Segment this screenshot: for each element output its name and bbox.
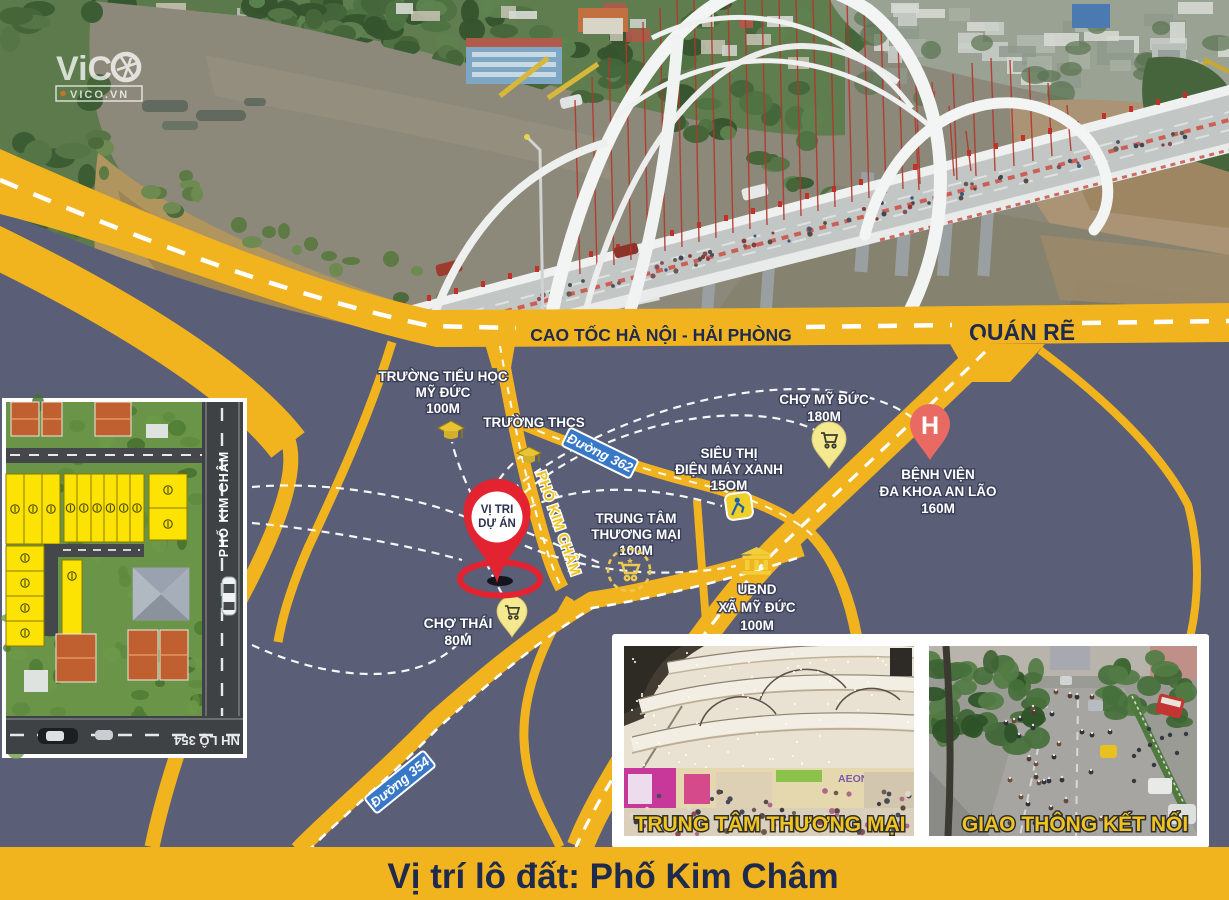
svg-text:SIÊU THỊ: SIÊU THỊ: [700, 446, 757, 461]
svg-text:TRƯỜNG TIỂU HỌC: TRƯỜNG TIỂU HỌC: [378, 369, 507, 384]
svg-text:THƯƠNG MẠI: THƯƠNG MẠI: [591, 527, 680, 542]
svg-text:15OM: 15OM: [711, 478, 748, 493]
svg-text:AEON: AEON: [838, 773, 868, 785]
svg-text:80M: 80M: [444, 632, 471, 648]
svg-text:ĐIỆN MÁY XANH: ĐIỆN MÁY XANH: [675, 462, 783, 477]
svg-text:180M: 180M: [807, 409, 841, 424]
svg-text:ĐA KHOA AN LÃO: ĐA KHOA AN LÃO: [880, 484, 997, 499]
svg-text:GIAO THÔNG KẾT NỐI: GIAO THÔNG KẾT NỐI: [962, 812, 1188, 836]
svg-text:160M: 160M: [921, 501, 955, 516]
svg-text:UBND: UBND: [738, 582, 777, 597]
svg-text:CAO TỐC HÀ NỘI - HẢI PHÒNG: CAO TỐC HÀ NỘI - HẢI PHÒNG: [530, 324, 792, 345]
svg-text:VICO.VN: VICO.VN: [70, 89, 129, 101]
svg-text:VỊ TRI: VỊ TRI: [481, 504, 514, 516]
svg-text:Vị trí lô đất: Phố Kim Châm: Vị trí lô đất: Phố Kim Châm: [387, 857, 838, 896]
svg-text:100M: 100M: [740, 618, 774, 633]
svg-text:TRUNG TÂM: TRUNG TÂM: [596, 511, 677, 526]
svg-text:H: H: [921, 412, 939, 440]
svg-text:PHỐ KIM CHÂM: PHỐ KIM CHÂM: [216, 451, 231, 557]
svg-text:NH LỘ 354: NH LỘ 354: [173, 733, 240, 748]
svg-text:DỰ ÁN: DỰ ÁN: [478, 517, 516, 530]
svg-text:TRUNG TÂM THƯƠNG MẠI: TRUNG TÂM THƯƠNG MẠI: [635, 812, 906, 836]
svg-text:CHỢ THÁI: CHỢ THÁI: [424, 615, 493, 631]
svg-text:MỸ ĐỨC: MỸ ĐỨC: [416, 385, 471, 400]
svg-text:100M: 100M: [426, 401, 460, 416]
svg-text:ViC: ViC: [56, 50, 112, 88]
svg-text:BỆNH VIỆN: BỆNH VIỆN: [901, 467, 975, 482]
svg-text:CHỢ MỸ ĐỨC: CHỢ MỸ ĐỨC: [779, 392, 869, 407]
svg-text:XÃ MỸ ĐỨC: XÃ MỸ ĐỨC: [718, 600, 795, 615]
